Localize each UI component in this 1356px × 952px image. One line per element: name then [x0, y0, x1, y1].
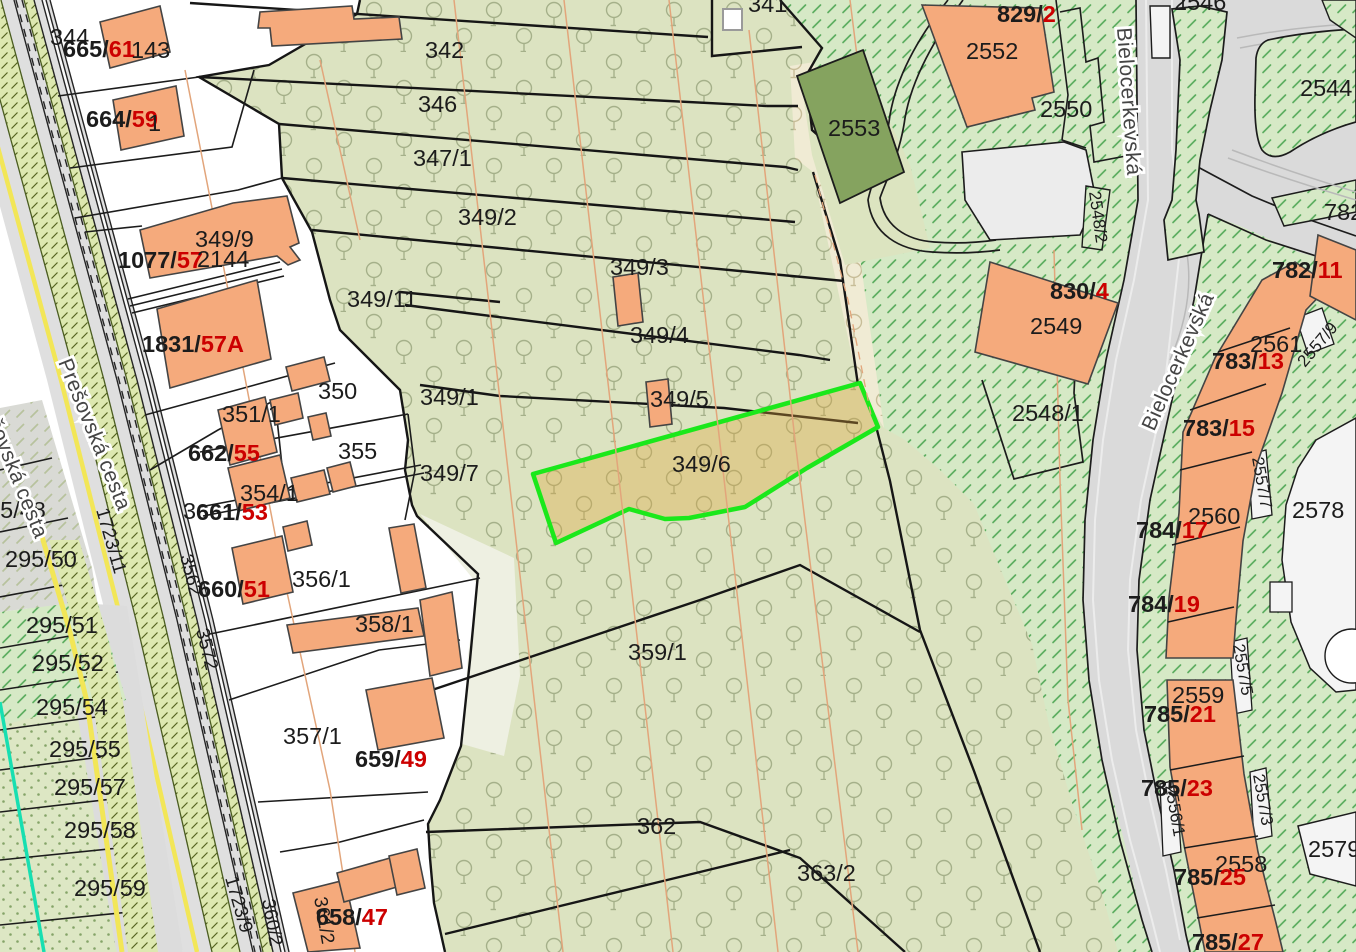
svg-text:349/6: 349/6 [672, 451, 731, 477]
svg-text:349/5: 349/5 [650, 386, 709, 412]
svg-text:785/25: 785/25 [1174, 864, 1246, 890]
svg-text:350: 350 [318, 378, 357, 404]
svg-text:2578: 2578 [1292, 497, 1344, 523]
svg-text:359/1: 359/1 [628, 639, 687, 665]
svg-text:349/2: 349/2 [458, 204, 517, 230]
svg-text:295/59: 295/59 [74, 875, 146, 901]
svg-text:346: 346 [418, 91, 457, 117]
svg-text:349/3: 349/3 [610, 254, 669, 280]
svg-text:349/11: 349/11 [347, 286, 417, 312]
svg-text:295/58: 295/58 [64, 817, 136, 843]
svg-text:1: 1 [148, 110, 161, 136]
svg-text:295/52: 295/52 [32, 650, 104, 676]
svg-text:661/53: 661/53 [196, 499, 268, 525]
svg-text:659/49: 659/49 [355, 746, 427, 772]
svg-text:342: 342 [425, 37, 464, 63]
svg-text:295/57: 295/57 [54, 774, 126, 800]
svg-text:295/50: 295/50 [5, 546, 77, 572]
svg-text:783/15: 783/15 [1183, 415, 1255, 441]
svg-text:2579: 2579 [1308, 836, 1356, 862]
svg-text:665/61: 665/61 [63, 36, 135, 62]
svg-text:295/54: 295/54 [36, 694, 108, 720]
svg-text:341: 341 [748, 0, 787, 17]
svg-text:355: 355 [338, 438, 377, 464]
svg-text:662/55: 662/55 [188, 440, 260, 466]
svg-text:2550: 2550 [1040, 96, 1092, 122]
svg-text:349/7: 349/7 [420, 460, 479, 486]
svg-text:1077/57: 1077/57 [118, 247, 203, 273]
svg-text:362: 362 [637, 813, 676, 839]
svg-text:358/1: 358/1 [355, 611, 414, 637]
svg-text:295/51: 295/51 [26, 612, 98, 638]
svg-text:782/: 782/ [1324, 199, 1356, 225]
svg-text:295/55: 295/55 [49, 736, 121, 762]
svg-text:785/21: 785/21 [1144, 701, 1216, 727]
svg-text:347/1: 347/1 [413, 145, 472, 171]
svg-text:351/1: 351/1 [222, 401, 281, 427]
svg-text:2553: 2553 [828, 115, 880, 141]
svg-text:2144: 2144 [197, 246, 249, 272]
svg-text:829/2: 829/2 [997, 1, 1056, 27]
svg-text:660/51: 660/51 [198, 576, 270, 602]
svg-text:2544: 2544 [1300, 75, 1352, 101]
svg-text:357/1: 357/1 [283, 723, 342, 749]
svg-text:143: 143 [131, 37, 170, 63]
svg-text:349/1: 349/1 [420, 384, 479, 410]
svg-text:2548/1: 2548/1 [1012, 400, 1084, 426]
svg-text:784/17: 784/17 [1136, 517, 1208, 543]
svg-text:2546: 2546 [1174, 0, 1226, 15]
svg-text:356/1: 356/1 [292, 566, 351, 592]
svg-text:785/27: 785/27 [1192, 929, 1264, 952]
svg-text:3: 3 [183, 498, 196, 524]
svg-text:784/19: 784/19 [1128, 591, 1200, 617]
svg-text:349/4: 349/4 [630, 322, 689, 348]
svg-text:2549: 2549 [1030, 313, 1082, 339]
svg-text:782/11: 782/11 [1272, 257, 1343, 283]
svg-text:783/13: 783/13 [1212, 348, 1284, 374]
svg-text:363/2: 363/2 [797, 860, 856, 886]
svg-text:830/4: 830/4 [1050, 278, 1109, 304]
svg-text:2552: 2552 [966, 38, 1018, 64]
svg-text:1831/57A: 1831/57A [142, 331, 244, 357]
